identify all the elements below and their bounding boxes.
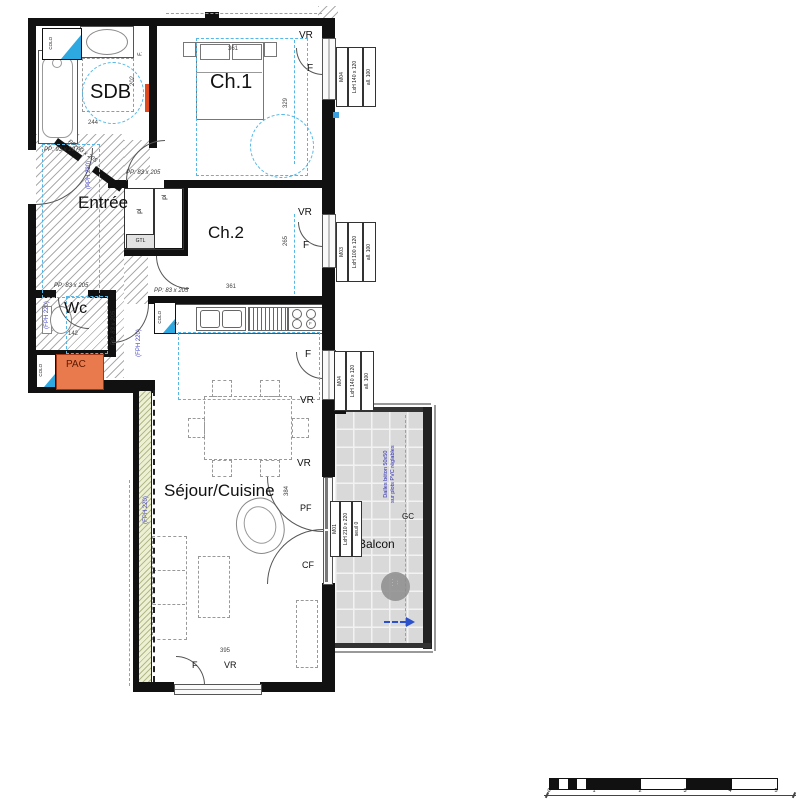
- window-fixing-dot: [333, 112, 339, 118]
- wall-left-upper: [28, 18, 36, 150]
- balcony-parapet-outer-right: [434, 405, 436, 651]
- drain-arrow-head: [406, 617, 415, 627]
- vr-label-3: VR: [300, 396, 314, 406]
- balcony-guide-line: [405, 415, 406, 641]
- balcony-parapet-bottom: [335, 643, 431, 648]
- window2-casement-swing: [298, 222, 323, 247]
- dim-sejour-height: 384: [284, 481, 290, 501]
- room-label-sejour: Séjour/Cuisine: [164, 482, 275, 499]
- scale-seg-3-4: [686, 779, 731, 789]
- drain-arrow-line: [384, 621, 406, 623]
- lowboard-2: [296, 600, 318, 668]
- guide-line-ch2: [294, 214, 295, 294]
- gc-label: GC: [402, 513, 414, 521]
- chair-5: [188, 418, 205, 438]
- pl-label-2: pl: [162, 190, 169, 204]
- wall-sejour-left-inner-dashed: [153, 390, 155, 682]
- room-label-sdb: SDB: [90, 82, 131, 102]
- pf-label: PF: [300, 504, 312, 513]
- annotation-pph: (PPH 220): [86, 153, 92, 197]
- guide-line-left-wall: [129, 480, 130, 686]
- guide-circle-ch1: [250, 114, 314, 178]
- vr-label-5: VR: [224, 661, 237, 670]
- chair-6: [292, 418, 309, 438]
- drainer: [248, 307, 288, 331]
- sink-bowl-right: [222, 310, 242, 328]
- window-tag-m01-balcony: M01 LxH 210 x 220 seuil 0: [330, 501, 362, 557]
- scale-tick-1: 1: [592, 789, 595, 795]
- balcony-note-line2: sur plots PVC réglables: [390, 445, 396, 502]
- guide-line-ch1: [294, 40, 295, 164]
- annotation-balcony-note: Dalles béton 50x50 sur plots PVC réglabl…: [383, 431, 397, 517]
- door-label-ch1: PP: 83 x 205: [126, 170, 160, 176]
- wall-right-a: [322, 18, 335, 38]
- wall-ch1-ch2: [164, 180, 322, 188]
- dim-ch2-height: 265: [283, 231, 289, 251]
- wall-bottom-a: [133, 682, 174, 692]
- ch2-door-swing: [156, 256, 189, 289]
- scale-bar: [549, 778, 778, 790]
- window-m04-top: [322, 38, 336, 100]
- riser-flag-3-triangle: [44, 374, 55, 387]
- wall-top: [28, 18, 335, 26]
- stamp-line2: · ·: [395, 580, 400, 584]
- cf-label: CF: [302, 561, 314, 570]
- floor-plan-canvas: · · · · ·: [0, 0, 803, 800]
- scale-seg-1-2: [595, 779, 640, 789]
- room-label-ch1: Ch.1: [210, 72, 252, 92]
- scale-baseline: [544, 795, 796, 796]
- bathtub-inner: [42, 56, 73, 138]
- wall-ch1-stub: [108, 180, 128, 188]
- topright-hatch-block: [318, 6, 338, 18]
- window-tag-m03: M03 LxH 100 x 120 all. 100: [336, 222, 376, 282]
- dim-sejour-width: 395: [220, 648, 230, 654]
- scale-tick-2: 2: [638, 789, 641, 795]
- riser-flag-2-label: COLO: [158, 307, 163, 327]
- balcony-stamp-text: · · · · ·: [391, 568, 400, 597]
- dim-ch1-height: 329: [283, 93, 289, 113]
- burner-3: [292, 319, 302, 329]
- scale-tick-4: 4: [728, 789, 731, 795]
- f-label-4: F: [192, 661, 198, 670]
- chair-3: [212, 460, 232, 477]
- window-bottom-casement-swing: [176, 656, 205, 685]
- tag3-id: M04: [334, 351, 346, 411]
- washer-label: F.: [138, 48, 144, 60]
- room-label-pac: PAC: [66, 360, 86, 370]
- tag1-id: M04: [336, 47, 348, 107]
- scale-seg-sub3: [568, 779, 577, 789]
- riser-flag-1-triangle: [61, 35, 81, 59]
- window-m03: [322, 214, 336, 268]
- scale-seg-sub2: [559, 779, 568, 789]
- window-tag-m04-top: M04 LxH 140 x 120 all. 100: [336, 47, 376, 107]
- annotation-fph-corridor: (FPH 220): [136, 321, 142, 365]
- corridor-floor-hatch: [124, 256, 148, 304]
- vr-label-1: VR: [299, 31, 313, 41]
- balcony-note-line1: Dalles béton 50x50: [383, 451, 389, 498]
- guide-rect-kitchen: [178, 332, 320, 400]
- dim-wc-width: 142: [68, 331, 78, 337]
- room-label-wc: Wc: [64, 301, 87, 317]
- tag1-dim: LxH 140 x 120: [348, 47, 363, 107]
- annotation-fph-wc: (FPH 220): [44, 293, 50, 337]
- lowboard-1: [198, 556, 230, 618]
- sofa-cushion-line-2: [153, 604, 185, 605]
- riser-flag-3-label: COLO: [39, 360, 44, 380]
- nightstand-left: [183, 42, 196, 57]
- guide-line-top: [166, 13, 322, 14]
- wall-insulation-strip: [139, 391, 152, 686]
- dim-ch1-width: 361: [228, 46, 238, 52]
- tag3-sill: all. 100: [361, 351, 374, 411]
- door-label-corridor: PP: 83 x 205: [111, 306, 117, 350]
- f-label-3: F: [305, 350, 311, 360]
- balcony-door-leaf-1: [325, 478, 328, 529]
- tag2-dim: LxH 100 x 120: [348, 222, 363, 282]
- room-label-balcon: Balcon: [358, 538, 395, 550]
- tag4-dim: LxH 210 x 220: [340, 501, 352, 557]
- lv-label: LV: [174, 322, 179, 327]
- balcony-parapet-outer-bottom: [335, 651, 433, 653]
- door-label-ch2: PP: 83 x 205: [154, 288, 188, 294]
- dim-sdb-height: 202: [130, 71, 136, 91]
- f-label-1: F: [307, 64, 313, 74]
- tag4-id: M01: [330, 501, 340, 557]
- corridor-door-swing: [112, 304, 149, 343]
- balcony-door-leaf-2: [325, 531, 328, 582]
- scale-tick-5: 5: [774, 789, 777, 795]
- sofa: [152, 536, 187, 640]
- window-tag-m04-kitchen: M04 LxH 140 x 120 all. 100: [334, 351, 374, 411]
- window-sejour-bottom: [174, 684, 262, 695]
- f-label-2: F: [303, 241, 309, 251]
- wall-sdb-right: [149, 26, 157, 148]
- pl-label-1: pl: [137, 204, 144, 218]
- burner-2: [306, 309, 316, 319]
- tag4-sill: seuil 0: [352, 501, 362, 557]
- burner-1: [292, 309, 302, 319]
- tag2-id: M03: [336, 222, 348, 282]
- tag1-sill: all. 100: [363, 47, 376, 107]
- scale-seg-sub1: [550, 779, 559, 789]
- scale-seg-4-5: [731, 779, 777, 789]
- wall-left-mid: [28, 204, 36, 382]
- chair-4: [260, 460, 280, 477]
- riser-flag-2: COLO: [154, 302, 176, 334]
- riser-flag-1-label: COLO: [49, 33, 54, 53]
- sink-bowl-left: [200, 310, 220, 328]
- riser-flag-1: COLO: [42, 28, 82, 60]
- balcony-parapet-right: [423, 407, 432, 649]
- dim-sdb-width: 244: [88, 120, 98, 126]
- scale-tick-3: 3: [683, 789, 686, 795]
- fridge-label: F: [309, 322, 312, 327]
- wall-right-c: [322, 266, 335, 350]
- sofa-cushion-line-1: [153, 570, 185, 571]
- vr-label-4: VR: [297, 459, 311, 469]
- vr-label-2: VR: [298, 208, 312, 218]
- riser-flag-3: COLO: [36, 354, 56, 388]
- door-label-wc: PP: 83 x 205: [54, 283, 88, 289]
- gtl-label: GTL: [136, 239, 146, 244]
- scale-seg-sub4: [577, 779, 586, 789]
- annotation-fph-sejour: (FPH 220): [143, 488, 149, 532]
- scale-seg-2-3: [640, 779, 686, 789]
- wall-right-e: [322, 583, 335, 692]
- tag2-sill: all. 100: [363, 222, 376, 282]
- tag3-dim: LxH 140 x 120: [346, 351, 361, 411]
- dim-ch2-width: 361: [226, 284, 236, 290]
- dining-table: [204, 396, 292, 460]
- sink-basin: [86, 29, 128, 55]
- gtl-box: GTL: [126, 234, 155, 249]
- room-label-ch2: Ch.2: [208, 224, 244, 241]
